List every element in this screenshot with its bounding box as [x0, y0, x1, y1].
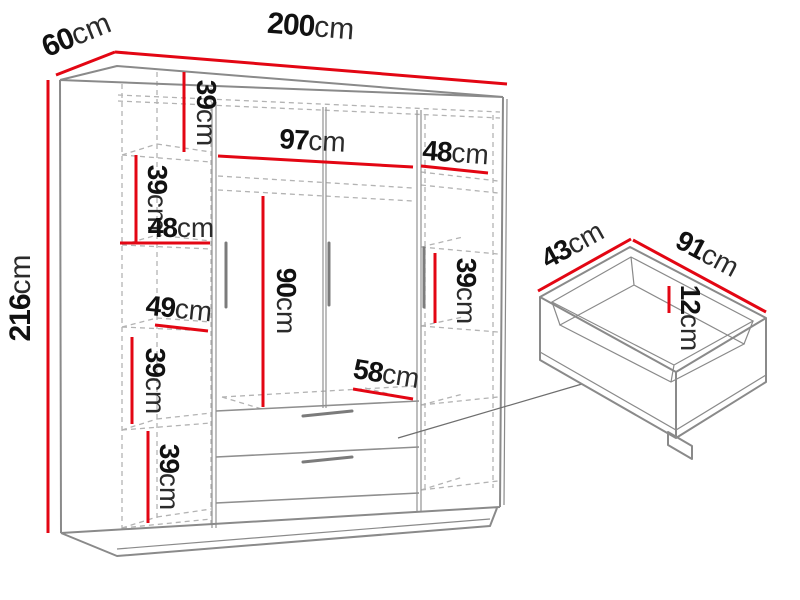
- dimension-label-hanging-90: 90cm: [271, 268, 302, 334]
- wardrobe-drawer-fronts: [216, 401, 419, 503]
- drawer-detail-drawing: [540, 247, 766, 459]
- door-and-drawer-handles: [226, 243, 424, 462]
- dimension-label-bottom-depth-58: 58cm: [351, 353, 422, 394]
- drawer-outline: [540, 247, 766, 459]
- dimension-label-right-width-48: 48cm: [421, 135, 489, 171]
- diagram-canvas: 60cm 200cm 216cm 39cm 39cm 48cm 49cm 39c…: [0, 0, 800, 600]
- furniture-dimension-diagram: 60cm 200cm 216cm 39cm 39cm 48cm 49cm 39c…: [0, 0, 800, 600]
- dimension-label-middle-width-97: 97cm: [278, 123, 346, 158]
- dimension-label-right-shelf-39: 39cm: [451, 258, 482, 324]
- dimension-label-left-width-49: 49cm: [144, 290, 213, 328]
- dimension-label-left-shelf-4: 39cm: [140, 348, 171, 414]
- dimension-label-left-shelf-5: 39cm: [154, 444, 185, 510]
- dimension-label-width: 200cm: [266, 7, 355, 47]
- dimension-label-height: 216cm: [4, 254, 37, 341]
- dimension-label-left-shelf-1: 39cm: [191, 80, 222, 146]
- dimension-label-drawer-height-12: 12cm: [675, 285, 706, 351]
- dimension-label-left-width-48: 48cm: [148, 212, 214, 243]
- dimension-line-width-200: [115, 52, 507, 84]
- leader-line: [398, 384, 582, 438]
- dimension-line-middle-width-97: [218, 156, 413, 167]
